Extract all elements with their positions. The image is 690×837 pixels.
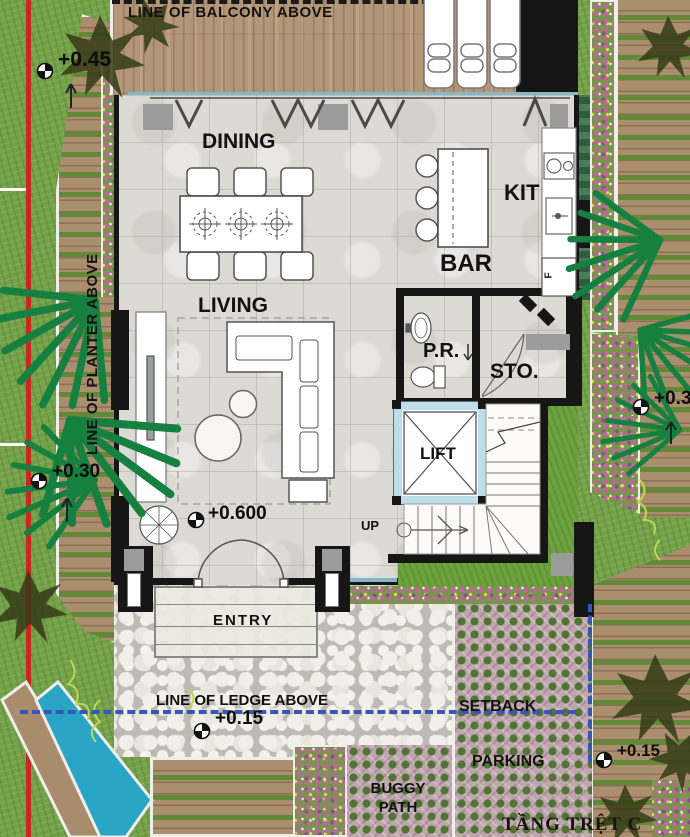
level-marker-icon	[30, 472, 48, 490]
right-walkway-deck	[616, 0, 690, 335]
wall-pr-left	[396, 288, 404, 406]
wall-right-block	[574, 200, 590, 248]
balcony-note: LINE OF BALCONY ABOVE	[128, 4, 333, 21]
building-floor	[115, 95, 578, 585]
up-label: UP	[361, 518, 379, 533]
room-label-living: LIVING	[198, 294, 268, 318]
entry-column-left-core	[127, 573, 141, 607]
room-label-storage: STO.	[490, 360, 539, 384]
facade-column	[318, 104, 348, 130]
dimension-tick	[0, 443, 26, 446]
ledge-note: LINE OF LEDGE ABOVE	[156, 692, 328, 709]
direction-arrow-icon	[60, 494, 74, 524]
entry-column-left-cap	[124, 549, 144, 571]
entry-column-right-cap	[322, 549, 342, 571]
level-entry: +0.15	[215, 708, 263, 730]
lift-corner	[478, 400, 487, 409]
glass-wall-line	[350, 578, 397, 582]
room-label-powder-room: P.R.	[423, 340, 459, 363]
lift-corner	[392, 496, 401, 505]
level-parking: +0.15	[617, 741, 660, 761]
room-label-entry: ENTRY	[213, 612, 273, 629]
entry-step-line	[154, 644, 318, 645]
setback-label: SETBACK	[459, 698, 536, 716]
gate-box	[551, 553, 573, 576]
level-planter: +0.45	[58, 48, 111, 72]
bottom-flower-bed	[293, 745, 347, 837]
room-label-kitchen: KIT	[504, 180, 539, 206]
top-right-wall-mass	[516, 0, 578, 95]
fridge-label: F	[544, 272, 555, 278]
plan-title: TẦNG TRỆT C	[502, 814, 642, 836]
wall-pr-sto-divider	[472, 294, 480, 404]
level-walkway-left: +0.30	[52, 461, 100, 483]
parking-pavers	[452, 602, 592, 837]
room-label-dining: DINING	[202, 130, 276, 154]
kitchen-column	[550, 104, 568, 128]
room-label-lift: LIFT	[420, 444, 456, 464]
parking-label: PARKING	[472, 753, 545, 771]
wall-stair-right	[540, 404, 548, 562]
storage-shelf	[526, 334, 570, 350]
level-marker-icon	[632, 398, 650, 416]
right-flower-strip	[590, 0, 616, 332]
direction-arrow-icon	[664, 418, 678, 446]
direction-arrow-icon	[64, 80, 78, 110]
lift-corner	[478, 496, 487, 505]
setback-line-vertical	[588, 604, 592, 762]
floor-plan-canvas: LINE OF BALCONY ABOVE LINE OF PLANTER AB…	[0, 0, 690, 837]
corner-flower-bed	[652, 780, 690, 837]
right-flower-wide	[590, 332, 640, 514]
level-marker-icon	[187, 511, 205, 529]
lift-corner	[392, 400, 401, 409]
wall-stair-bottom	[388, 554, 548, 563]
gate-column	[574, 522, 594, 617]
room-label-bar: BAR	[440, 250, 492, 278]
dimension-tick	[0, 188, 26, 191]
entry-column-right-core	[325, 573, 339, 607]
entry-step-line	[154, 604, 318, 605]
wall-left-thick	[111, 310, 129, 410]
level-marker-icon	[595, 751, 613, 769]
level-marker-icon	[193, 722, 211, 740]
level-walkway-right: +0.3	[654, 388, 690, 410]
level-marker-icon	[36, 62, 54, 80]
wall-pr-top	[396, 288, 582, 296]
buggy-path-label: BUGGY PATH	[356, 780, 440, 818]
level-living: +0.600	[208, 503, 267, 525]
glass-wall-line	[128, 92, 578, 95]
foundation-flower-strip	[350, 586, 576, 604]
planter-note: LINE OF PLANTER ABOVE	[84, 253, 101, 455]
facade-column	[143, 104, 173, 130]
